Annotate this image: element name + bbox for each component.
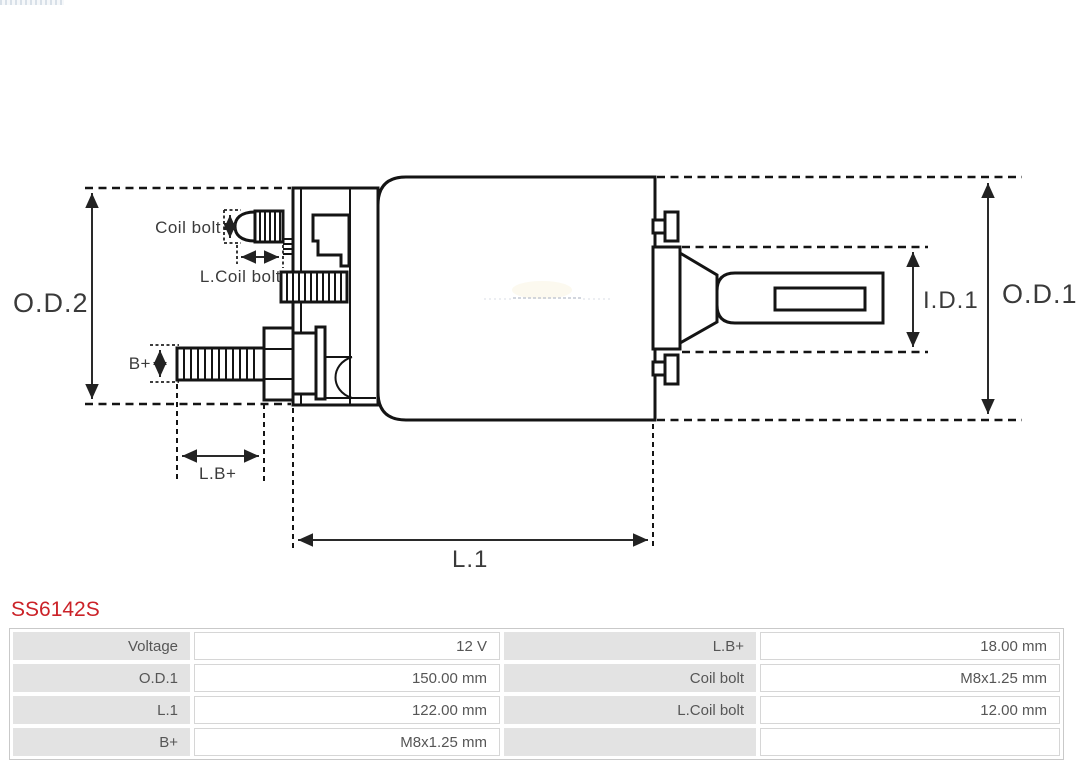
coil-bolt-assembly: Coil bolt L.Coil bolt	[155, 210, 283, 286]
od1-label: O.D.1	[1002, 279, 1078, 309]
od2-label: O.D.2	[13, 288, 89, 318]
spec-value-lcoil-bolt: 12.00 mm	[760, 696, 1060, 724]
l-coil-bolt-label: L.Coil bolt	[200, 267, 281, 286]
dimension-l1: L.1	[293, 408, 653, 573]
spec-label-lcoil-bolt: L.Coil bolt	[504, 696, 756, 724]
plunger-slot	[775, 288, 865, 310]
spec-value-l1: 122.00 mm	[194, 696, 500, 724]
washer	[316, 327, 325, 399]
solenoid-body	[378, 177, 655, 420]
spec-value-empty	[760, 728, 1060, 756]
spec-value-od1: 150.00 mm	[194, 664, 500, 692]
flange-thread-block	[281, 272, 347, 302]
id1-label: I.D.1	[923, 287, 979, 314]
l1-label: L.1	[452, 546, 488, 573]
spec-value-bplus: M8x1.25 mm	[194, 728, 500, 756]
page: O.D.2 O.D.1 I.D.1 L.1	[0, 0, 1080, 767]
spec-label-od1: O.D.1	[13, 664, 190, 692]
hex-nut	[264, 328, 293, 400]
spec-value-voltage: 12 V	[194, 632, 500, 660]
lb-plus-label: L.B+	[199, 464, 236, 483]
coil-bolt-label: Coil bolt	[155, 218, 221, 237]
solenoid-technical-drawing: O.D.2 O.D.1 I.D.1 L.1	[0, 0, 1080, 600]
plunger-assembly	[653, 247, 883, 349]
spec-label-l1: L.1	[13, 696, 190, 724]
spec-label-lbplus: L.B+	[504, 632, 756, 660]
spec-value-coil-bolt: M8x1.25 mm	[760, 664, 1060, 692]
part-number: SS6142S	[11, 598, 100, 622]
spec-label-voltage: Voltage	[13, 632, 190, 660]
spec-table: Voltage 12 V L.B+ 18.00 mm O.D.1 150.00 …	[9, 628, 1064, 760]
spec-label-bplus: B+	[13, 728, 190, 756]
spec-value-lbplus: 18.00 mm	[760, 632, 1060, 660]
b-plus-label: B+	[129, 354, 151, 373]
spec-label-empty	[504, 728, 756, 756]
spec-label-coil-bolt: Coil bolt	[504, 664, 756, 692]
